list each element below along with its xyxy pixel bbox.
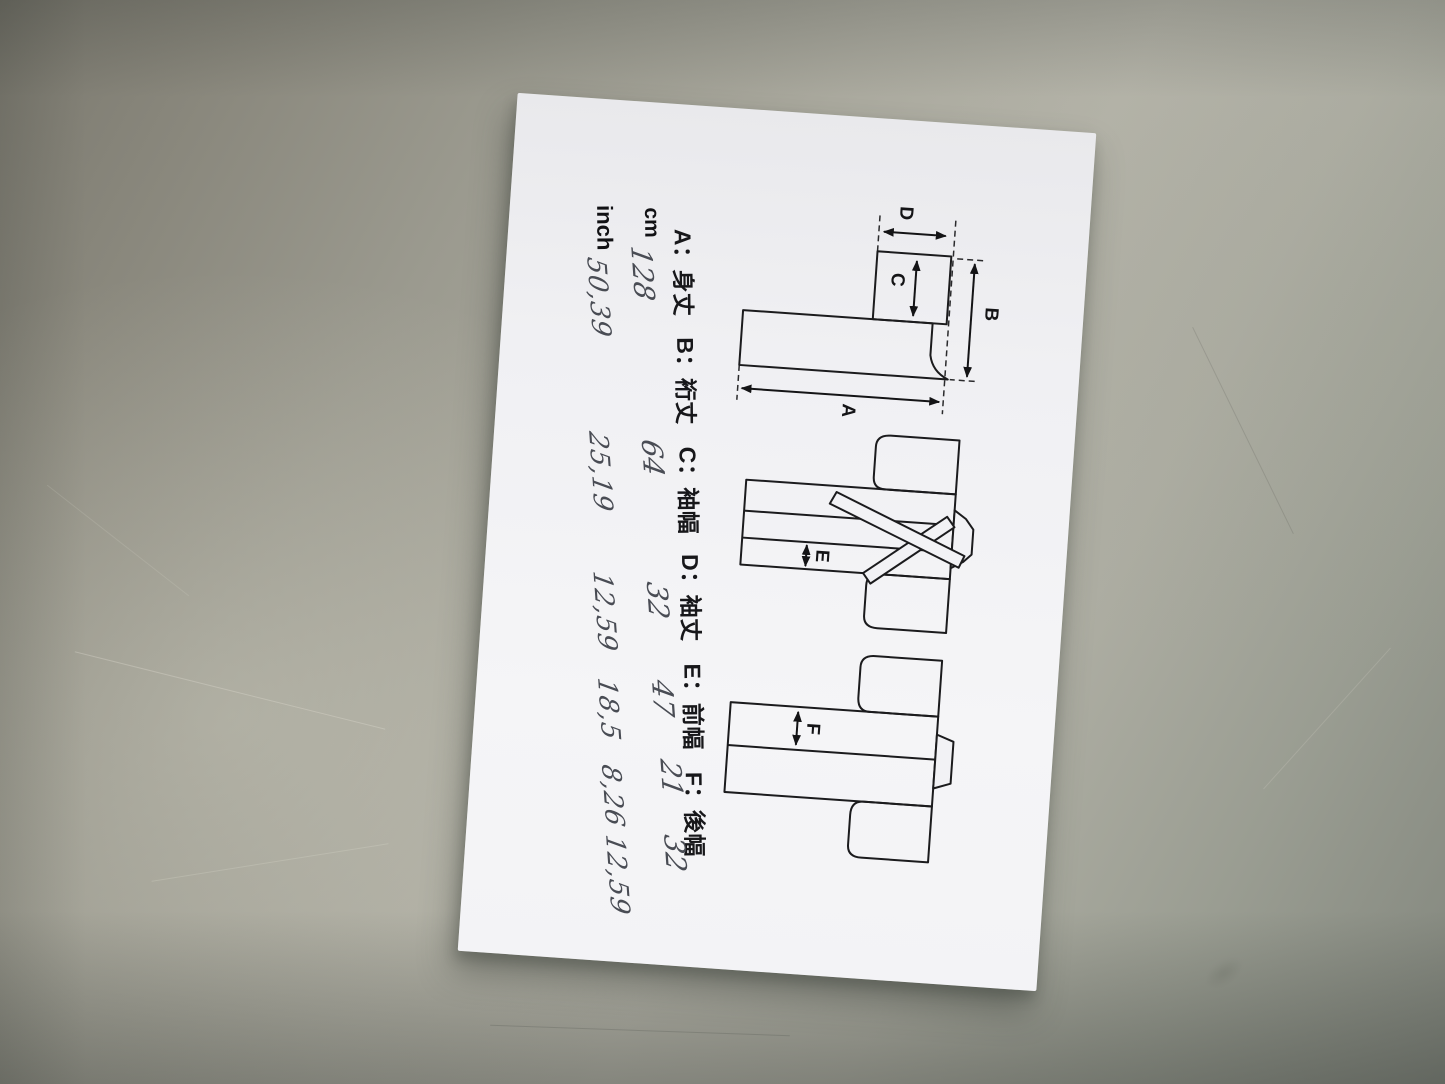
legend-key: B (672, 337, 698, 354)
folded-kimono-diagram: A B C D (736, 195, 1008, 427)
hw-value-inch-E: 8,26 (595, 762, 630, 829)
legend-key: A (670, 229, 696, 246)
back-body (724, 702, 938, 806)
photo-scene: A B C D E (0, 0, 1445, 1084)
back-center-seam (728, 745, 935, 760)
measure-label-B: B (980, 307, 1002, 322)
back-left-sleeve (857, 655, 942, 717)
legend-term: 裄丈 (672, 378, 698, 425)
measure-label-C: C (886, 272, 908, 287)
measure-arrow-E (805, 545, 806, 566)
legend-separator: ： (670, 246, 696, 270)
back-collar (933, 735, 954, 790)
hw-value-cm-A: 128 (624, 244, 661, 303)
legend-key: E (679, 663, 705, 679)
unit-label-cm: cm (639, 207, 663, 238)
measure-arrow-B (967, 264, 975, 377)
hw-value-cm-F: 32 (657, 833, 693, 874)
measure-label-E: E (811, 549, 833, 563)
hw-value-cm-C: 32 (640, 580, 676, 621)
legend-term: 袖幅 (675, 487, 701, 534)
hw-value-inch-F: 12,59 (599, 833, 635, 918)
hw-value-cm-B: 64 (635, 437, 671, 478)
measure-label-A: A (837, 403, 859, 418)
front-right-sleeve (863, 573, 950, 633)
hw-value-cm-E: 21 (653, 757, 689, 798)
legend-item-E: E：前幅 (677, 663, 712, 750)
unit-label-inch: inch (591, 205, 617, 250)
legend-item-D: D：袖丈 (675, 554, 710, 642)
legend-term: 前幅 (680, 703, 706, 750)
legend-separator: ： (675, 464, 701, 488)
size-chart-paper: A B C D E (458, 93, 1097, 991)
back-view-diagram: F (721, 646, 960, 863)
measure-arrow-F (796, 712, 798, 745)
hw-value-inch-C: 12,59 (586, 569, 622, 654)
measure-arrow-D (884, 232, 946, 236)
measure-label-D: D (895, 206, 917, 221)
legend-key: C (674, 447, 700, 464)
back-right-sleeve (847, 801, 932, 863)
hw-value-cm-D: 47 (645, 677, 681, 718)
legend-separator: ： (677, 571, 703, 595)
legend-item-C: C：袖幅 (672, 447, 707, 535)
legend-term: 身丈 (670, 269, 696, 316)
measure-arrow-C (913, 261, 917, 316)
legend-separator: ： (679, 679, 705, 703)
kimono-diagrams-svg: A B C D E (458, 93, 1097, 991)
hw-value-inch-D: 18,5 (591, 676, 626, 743)
legend-item-B: B：裄丈 (670, 337, 705, 425)
legend-key: D (677, 554, 703, 571)
hw-value-inch-A: 50,39 (580, 255, 616, 340)
legend-term: 袖丈 (677, 595, 703, 642)
front-body (740, 480, 955, 579)
measure-label-F: F (802, 722, 824, 735)
legend-separator: ： (672, 354, 698, 378)
measure-arrow-A (742, 388, 940, 402)
body-outline (739, 310, 951, 379)
front-left-sleeve (873, 435, 960, 495)
hw-value-inch-B: 25,19 (582, 430, 618, 515)
legend-item-A: A：身丈 (668, 229, 703, 317)
sleeve-square (873, 251, 952, 324)
front-view-diagram: E (737, 426, 980, 635)
